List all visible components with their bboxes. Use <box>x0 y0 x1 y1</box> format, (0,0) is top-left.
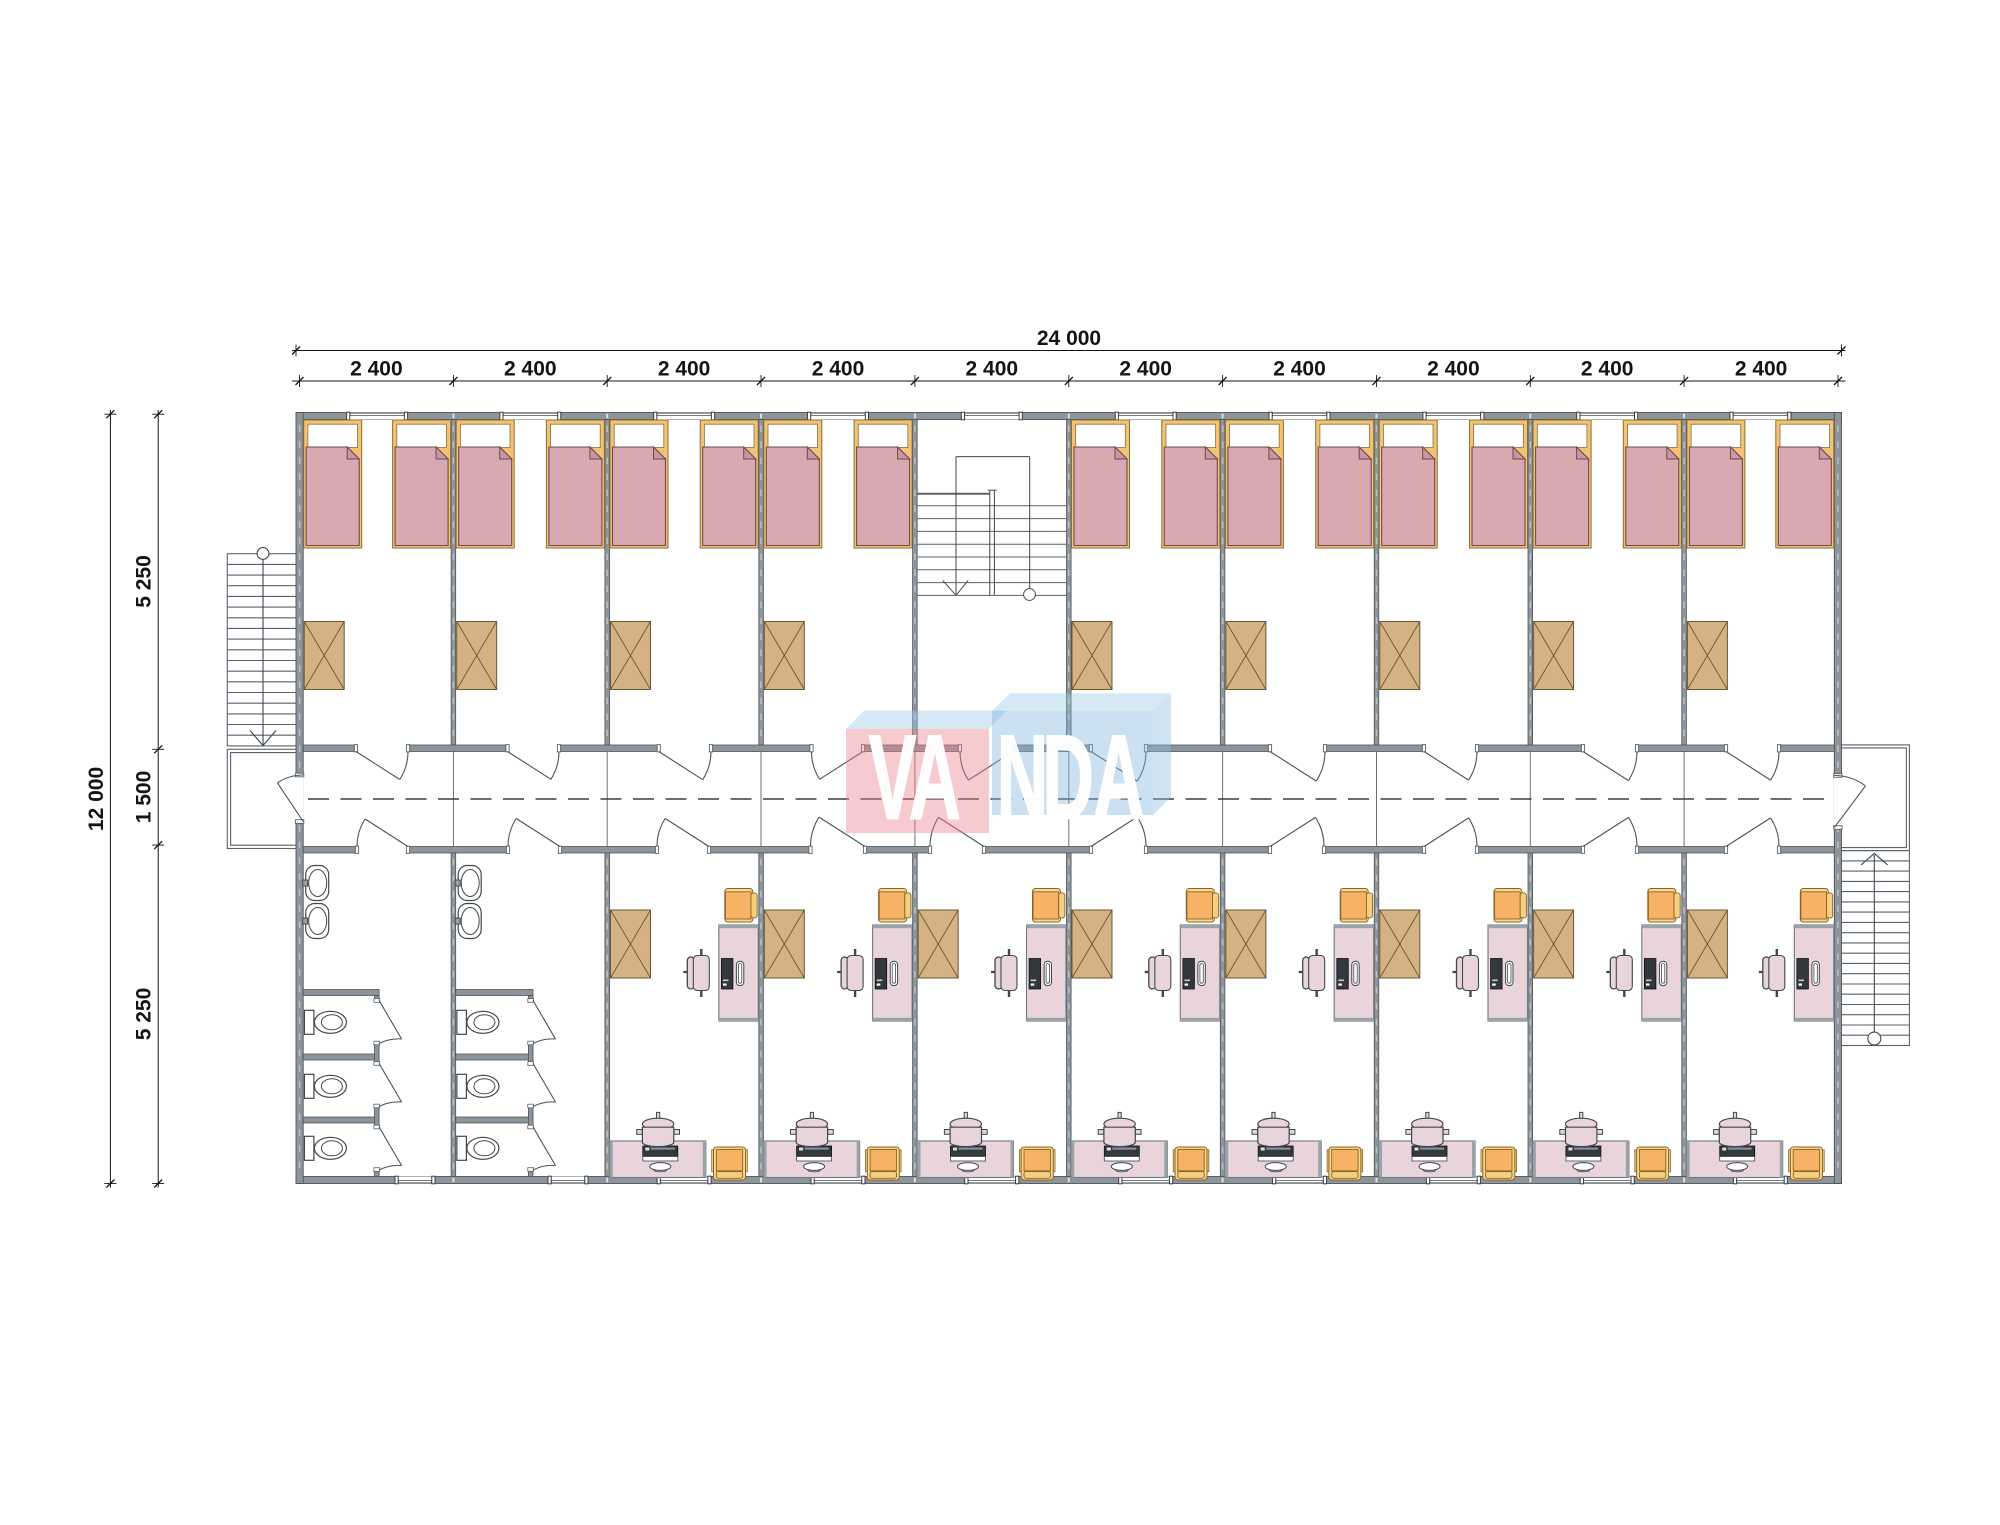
svg-text:5 250: 5 250 <box>133 988 156 1041</box>
svg-text:2 400: 2 400 <box>1735 358 1788 381</box>
svg-text:5 250: 5 250 <box>133 555 156 608</box>
svg-text:1 500: 1 500 <box>133 771 156 824</box>
svg-text:24 000: 24 000 <box>1037 327 1101 350</box>
svg-text:2 400: 2 400 <box>966 358 1019 381</box>
svg-text:2 400: 2 400 <box>350 358 403 381</box>
svg-text:2 400: 2 400 <box>1581 358 1634 381</box>
svg-text:2 400: 2 400 <box>504 358 557 381</box>
svg-text:2 400: 2 400 <box>658 358 711 381</box>
svg-text:12 000: 12 000 <box>85 767 108 831</box>
svg-text:VANDA: VANDA <box>869 710 1145 844</box>
svg-text:2 400: 2 400 <box>1273 358 1326 381</box>
svg-text:2 400: 2 400 <box>1427 358 1480 381</box>
svg-text:2 400: 2 400 <box>812 358 865 381</box>
svg-text:2 400: 2 400 <box>1119 358 1172 381</box>
